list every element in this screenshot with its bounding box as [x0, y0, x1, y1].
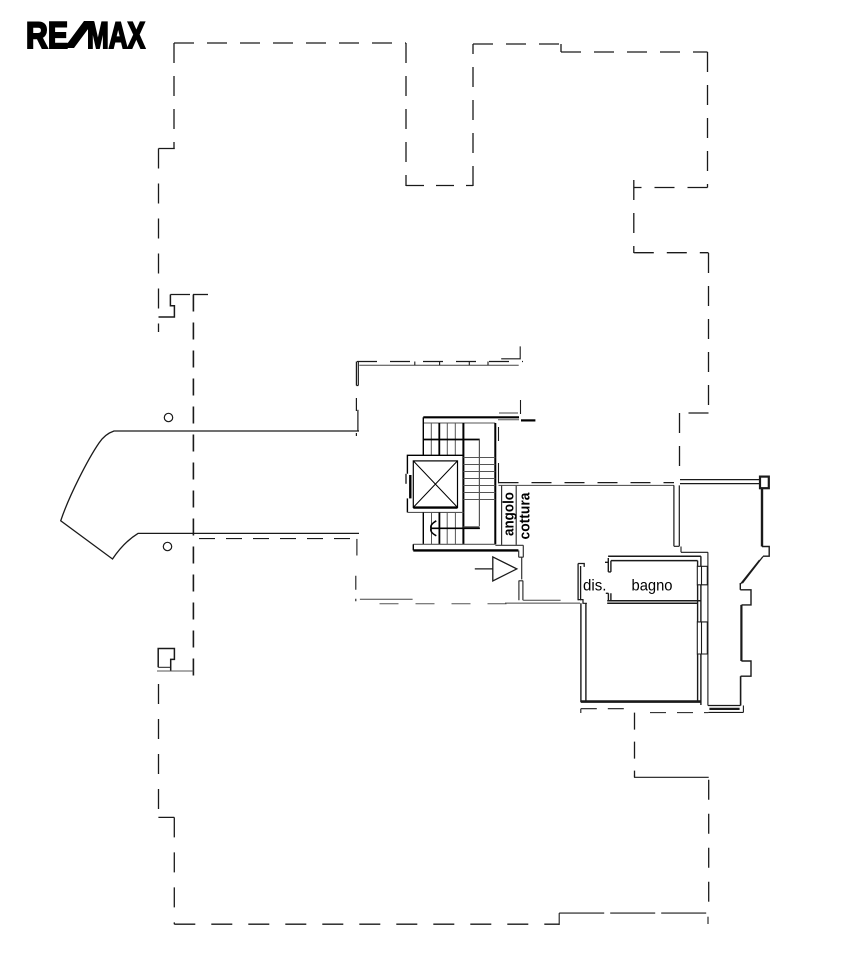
svg-text:dis.: dis.	[583, 578, 607, 595]
svg-text:cottura: cottura	[518, 492, 534, 540]
svg-text:RE: RE	[26, 15, 68, 56]
svg-text:MAX: MAX	[87, 15, 145, 56]
svg-text:angolo: angolo	[502, 492, 518, 536]
svg-text:bagno: bagno	[632, 578, 673, 595]
